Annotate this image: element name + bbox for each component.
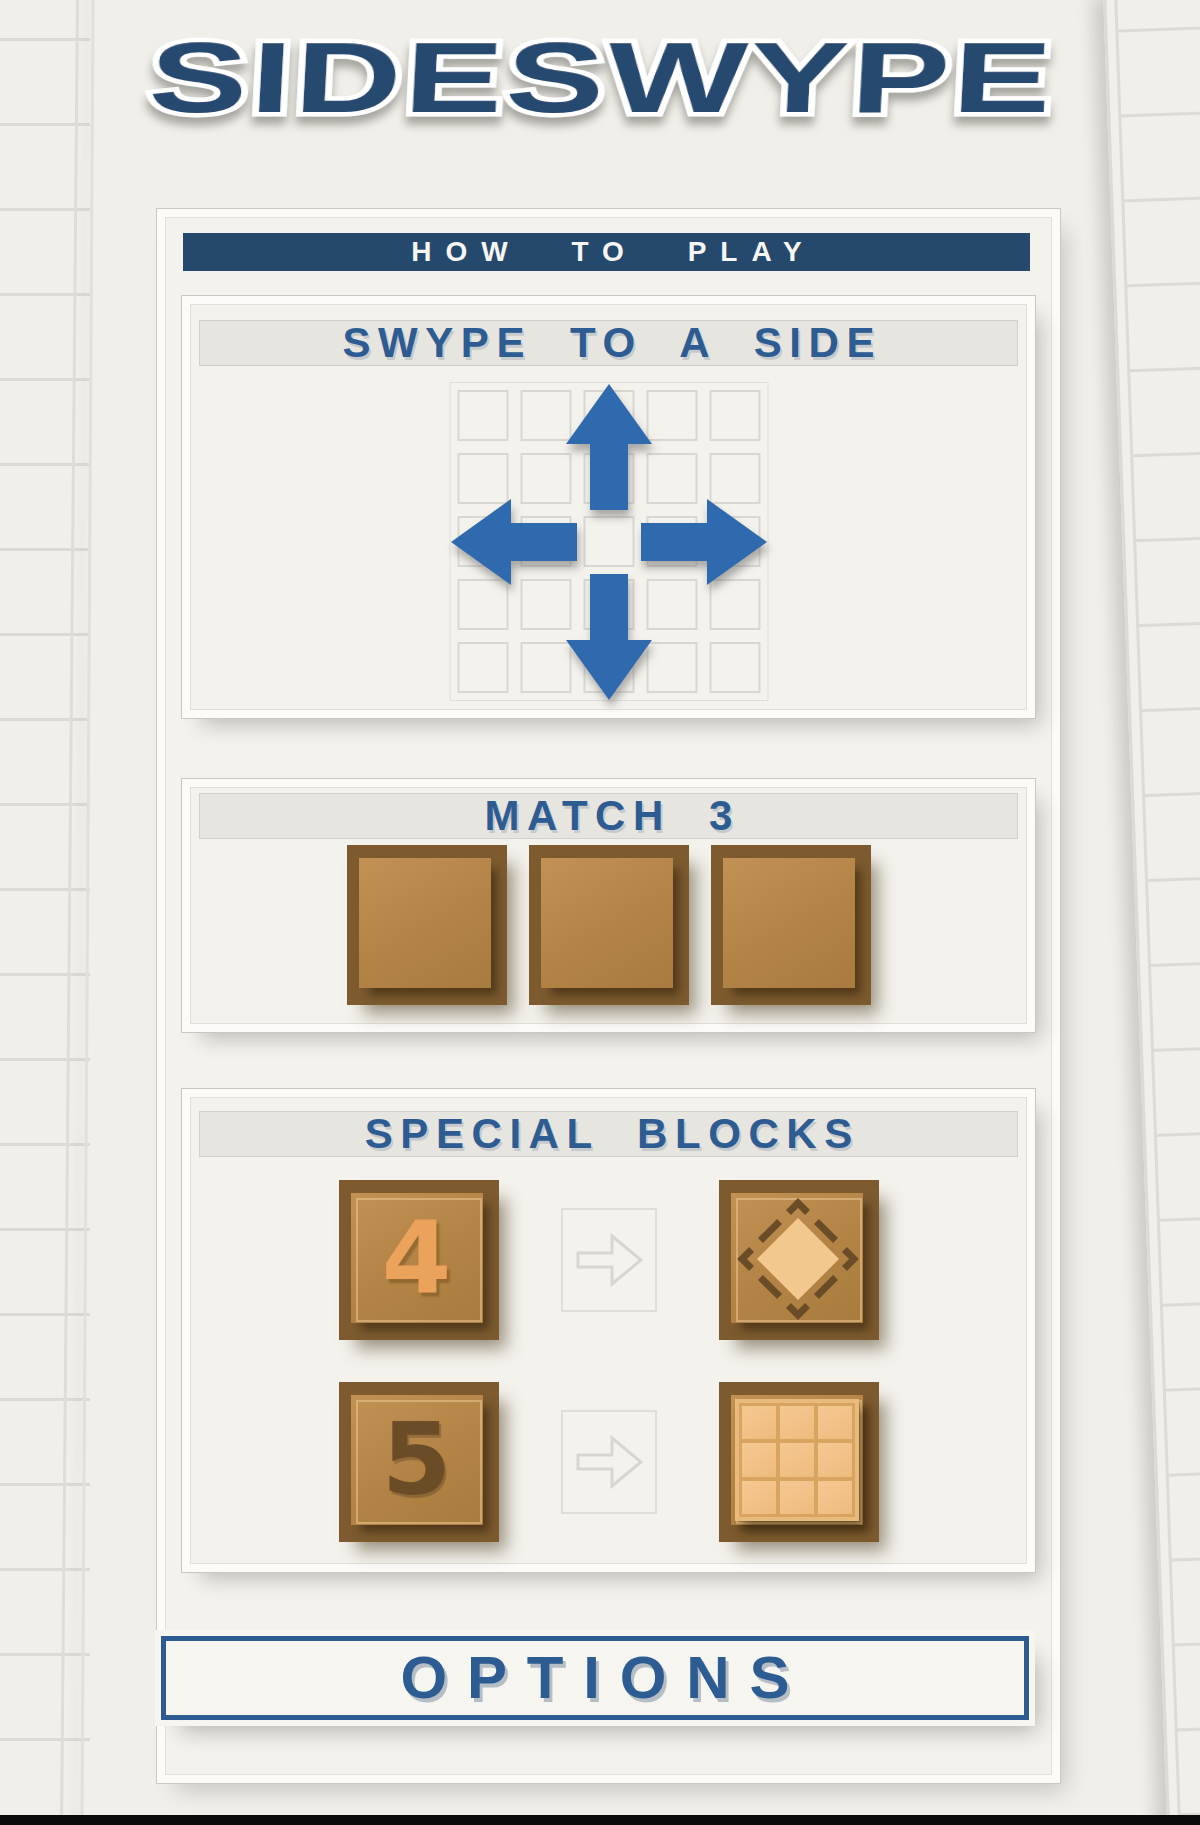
swype-section: SWYPE TO A SIDE: [181, 295, 1036, 719]
match-block: [711, 845, 871, 1005]
match-heading-label: MATCH 3: [485, 795, 740, 837]
grid-block-cell: [818, 1481, 852, 1514]
help-panel: HOW TO PLAY SWYPE TO A SIDE MATCH 3: [156, 208, 1061, 1784]
arrow-right-icon: [641, 499, 767, 585]
special-section: SPECIAL BLOCKS 4 5: [181, 1088, 1036, 1573]
arrow-right-icon: [573, 1229, 645, 1291]
arrow-right-icon: [573, 1431, 645, 1493]
options-button[interactable]: OPTIONS: [161, 1636, 1029, 1720]
grid-block-cell: [818, 1406, 852, 1439]
special-heading-label: SPECIAL BLOCKS: [365, 1113, 860, 1155]
game-title-logo: SIDESWYPE: [120, 16, 1080, 146]
grid-block-cell: [742, 1443, 776, 1476]
match-block: [347, 845, 507, 1005]
match-section: MATCH 3: [181, 778, 1036, 1033]
arrow-up-icon: [566, 384, 652, 510]
sideswype-help-screen: { "title": "SIDESWYPE", "how_to_play": {…: [0, 0, 1200, 1825]
how-to-play-header: HOW TO PLAY: [183, 233, 1030, 271]
game-title-text: SIDESWYPE: [146, 21, 1057, 133]
arrow-left-icon: [451, 499, 577, 585]
grid-block-icon: [735, 1399, 859, 1521]
diamond-block-icon: [733, 1195, 863, 1323]
grid-block-cell: [742, 1481, 776, 1514]
transform-arrow-box: [561, 1410, 657, 1514]
special-row-4: 4: [182, 1180, 1035, 1340]
grid-block-cell: [780, 1443, 814, 1476]
swipe-arrows-icon: [439, 372, 779, 712]
digit-5-label: 5: [351, 1395, 483, 1525]
grid-result-block: [719, 1382, 879, 1542]
diamond-result-block: [719, 1180, 879, 1340]
match-blocks-row: [182, 845, 1035, 1005]
grid-block-cell: [818, 1443, 852, 1476]
transform-arrow-box: [561, 1208, 657, 1312]
grid-block-cell: [742, 1406, 776, 1439]
digit-4-block: 4: [339, 1180, 499, 1340]
paper-margin-right: [1103, 0, 1200, 1825]
options-button-label: OPTIONS: [401, 1648, 810, 1708]
how-to-play-label: HOW TO PLAY: [411, 236, 815, 268]
match-heading: MATCH 3: [199, 793, 1018, 839]
game-title: SIDESWYPE: [0, 16, 1200, 146]
special-row-5: 5: [182, 1382, 1035, 1542]
grid-block-cell: [780, 1481, 814, 1514]
digit-4-label: 4: [351, 1193, 483, 1323]
swype-heading: SWYPE TO A SIDE: [199, 320, 1018, 366]
match-block: [529, 845, 689, 1005]
special-heading: SPECIAL BLOCKS: [199, 1111, 1018, 1157]
arrow-down-icon: [566, 574, 652, 700]
swype-heading-label: SWYPE TO A SIDE: [342, 322, 882, 364]
bottom-bar: [0, 1815, 1200, 1825]
digit-5-block: 5: [339, 1382, 499, 1542]
grid-block-cell: [780, 1406, 814, 1439]
